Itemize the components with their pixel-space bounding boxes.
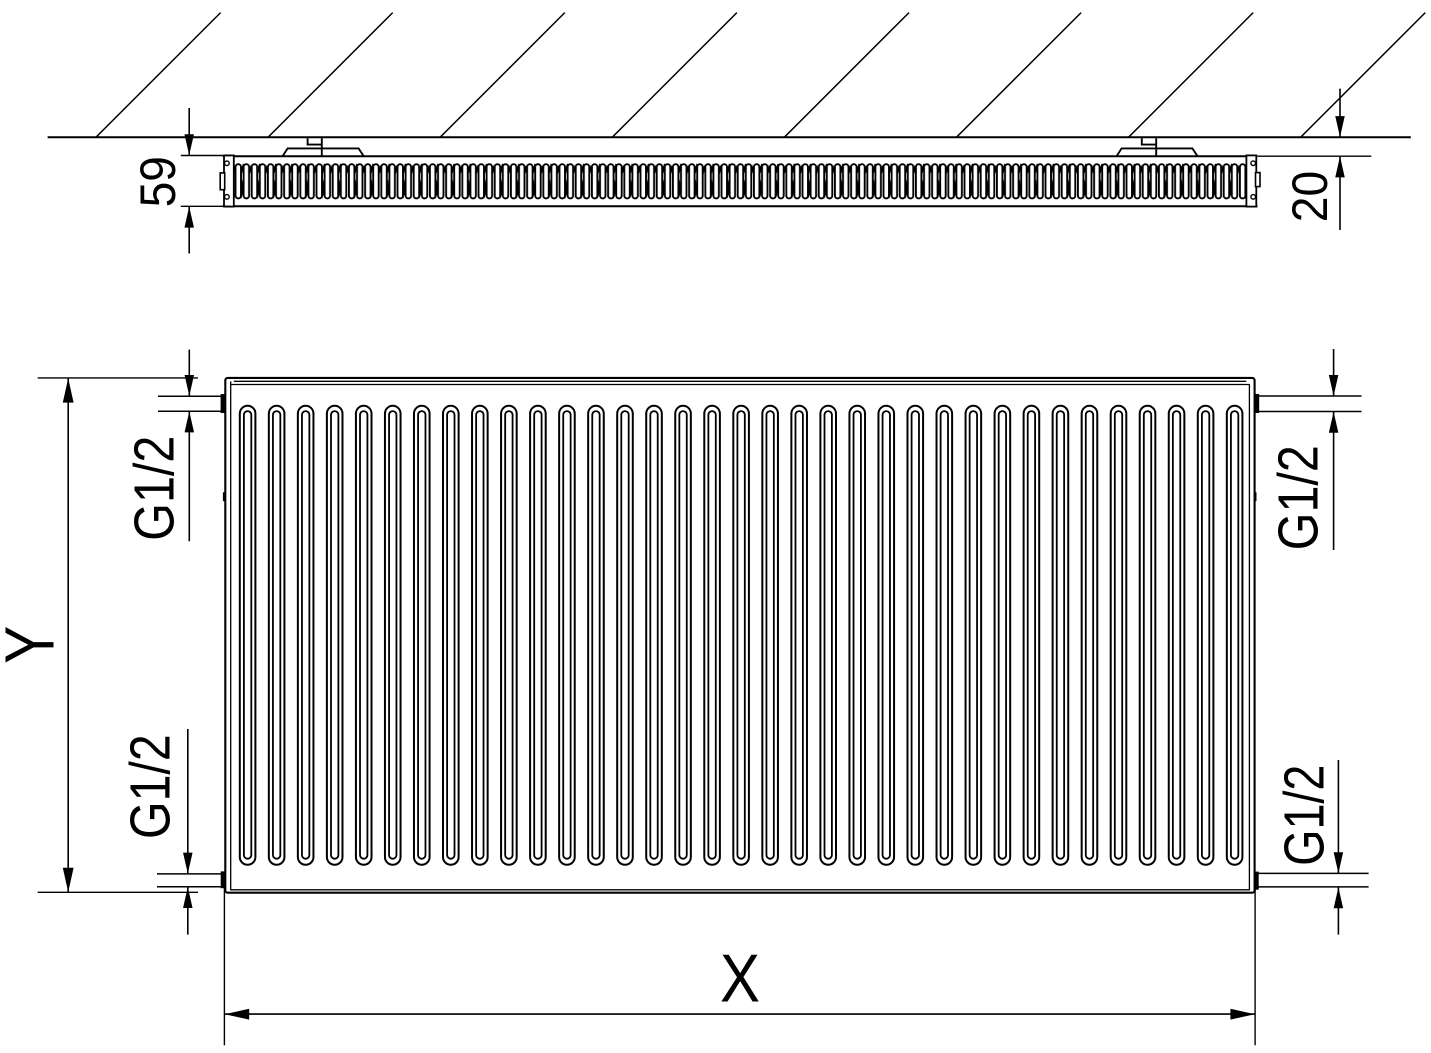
svg-text:X: X xyxy=(720,940,760,1016)
svg-text:Y: Y xyxy=(0,626,69,664)
svg-text:G1/2: G1/2 xyxy=(1267,445,1331,550)
svg-text:59: 59 xyxy=(130,156,186,207)
svg-text:G1/2: G1/2 xyxy=(1273,765,1337,866)
svg-text:G1/2: G1/2 xyxy=(123,436,187,541)
svg-text:20: 20 xyxy=(1282,171,1338,223)
svg-text:G1/2: G1/2 xyxy=(118,734,182,839)
